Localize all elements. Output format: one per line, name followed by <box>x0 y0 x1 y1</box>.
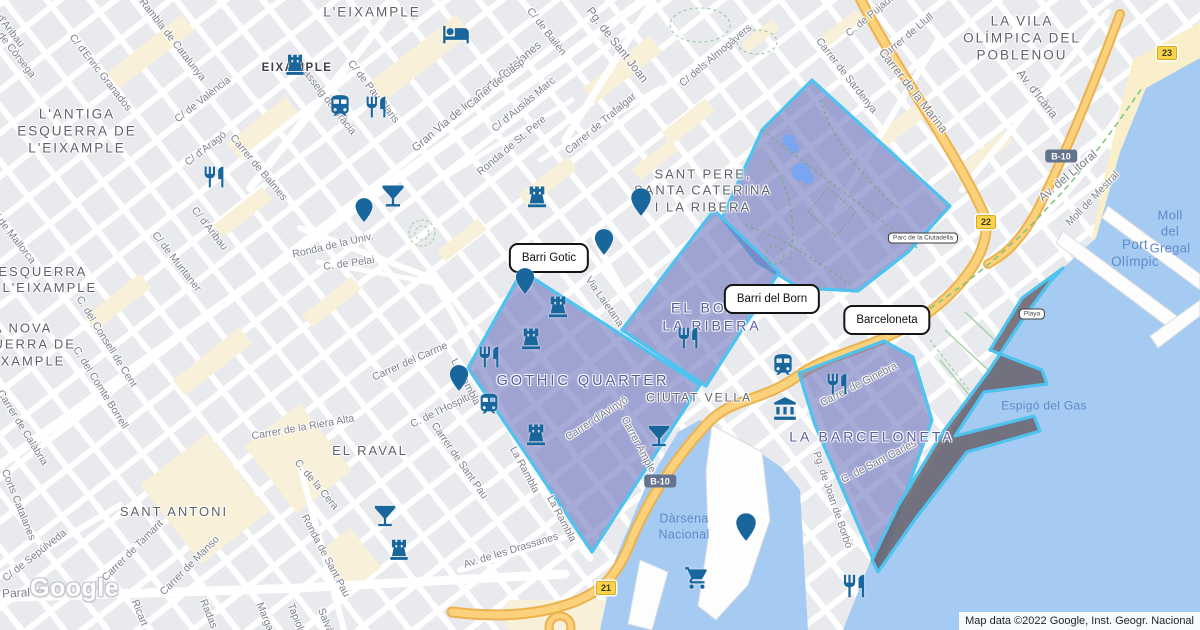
street-label: Carrer de la Marina <box>875 46 950 137</box>
district-label: GOTHIC QUARTER <box>496 372 669 390</box>
street-label: Corts Catalanes <box>0 468 38 543</box>
area-label: LA NOVA ESQUERRA DE L'EIXAMPLE <box>0 321 76 370</box>
google-logo[interactable]: Google <box>30 574 119 603</box>
area-label: L'ANTIGA ESQUERRA DE L'EIXAMPLE <box>17 107 137 158</box>
street-label: C. de la Cera <box>291 457 341 513</box>
water-label: Moll del Gregal <box>1150 208 1191 257</box>
callout-barceloneta[interactable]: Barceloneta <box>843 305 930 335</box>
map-box-label: Playa <box>1019 309 1045 320</box>
street-label: Margarit <box>253 601 280 630</box>
train-icon[interactable] <box>770 352 796 378</box>
street-label: Pg. de Sant Joan <box>583 4 652 86</box>
route-badge: B-10 <box>1045 150 1077 163</box>
castle-icon[interactable] <box>524 183 551 210</box>
pin-icon[interactable] <box>351 197 377 223</box>
street-label: Ricart <box>128 598 150 628</box>
street-label: Carrer de la Riera Alta <box>251 413 356 444</box>
cocktail-icon[interactable] <box>372 503 399 530</box>
street-label: Carrer de Balmes <box>227 132 290 203</box>
restaurant-icon[interactable] <box>364 95 389 120</box>
area-label: SANT ANTONI <box>120 504 228 520</box>
street-label: Tapioles <box>284 602 311 630</box>
pin-icon[interactable] <box>590 228 618 256</box>
street-label: C/ d'Enric Granados <box>66 32 134 114</box>
bed-icon[interactable] <box>442 20 470 48</box>
area-label: EL RAVAL <box>332 443 408 459</box>
area-label: CIUTAT VELLA <box>646 391 752 406</box>
street-label: Rambla de Catalunya <box>136 0 209 84</box>
map-canvas[interactable]: C. de CòrsegaC/ d'AribauC/ d'Enric Grana… <box>0 0 1200 630</box>
street-label: C. de Pelai <box>323 254 376 274</box>
street-label: Carrer del Carme <box>370 340 449 385</box>
castle-icon[interactable] <box>282 51 308 77</box>
route-badge: B-10 <box>644 475 676 488</box>
street-label: C/ de València <box>172 74 233 126</box>
area-label: L'ESQUERRA DE L'EIXAMPLE <box>0 264 97 297</box>
castle-icon[interactable] <box>545 293 572 320</box>
pin-icon[interactable] <box>731 512 761 542</box>
museum-icon[interactable] <box>772 396 798 422</box>
cocktail-icon[interactable] <box>646 423 673 450</box>
street-label: C/ d'Aribau <box>188 205 230 254</box>
castle-icon[interactable] <box>523 421 550 448</box>
restaurant-icon[interactable] <box>825 372 850 397</box>
train-icon[interactable] <box>327 93 353 119</box>
map-overlay: C. de CòrsegaC/ d'AribauC/ d'Enric Grana… <box>0 0 1200 630</box>
street-label: Radas <box>196 597 220 630</box>
cocktail-icon[interactable] <box>379 182 407 210</box>
train-icon[interactable] <box>477 392 502 417</box>
callout-barri-del-born[interactable]: Barri del Born <box>724 284 820 314</box>
castle-icon[interactable] <box>386 536 412 562</box>
street-label: Carrer de Sardenya <box>812 36 879 117</box>
water-label: Dàrsena Nacional <box>658 511 709 542</box>
castle-icon[interactable] <box>518 325 545 352</box>
street-label: Carrer de Trafalgar <box>563 90 639 157</box>
street-label: La Rambla <box>506 445 541 496</box>
area-label: L'EIXAMPLE <box>323 5 421 22</box>
street-label: Pg. de Joan de Borbó <box>809 450 854 550</box>
street-label: Carrer de Manso <box>158 534 223 599</box>
cart-icon[interactable] <box>684 565 710 591</box>
restaurant-icon[interactable] <box>841 573 868 600</box>
route-badge: 22 <box>976 215 996 229</box>
street-label: C. del Consell de Cent <box>73 294 140 390</box>
pin-icon[interactable] <box>445 364 473 392</box>
street-label: Via Laietana <box>582 274 626 329</box>
pin-icon[interactable] <box>626 187 656 217</box>
district-label: LA BARCELONETA <box>789 428 954 446</box>
street-label: Carrer de Sant Pau <box>428 420 491 502</box>
water-label: Espigó del Gas <box>1001 399 1087 414</box>
street-label: Carrer de Calàbria <box>0 388 50 468</box>
restaurant-icon[interactable] <box>676 326 701 351</box>
area-label: LA VILA OLÍMPICA DEL POBLENOU <box>963 14 1081 65</box>
restaurant-icon[interactable] <box>202 165 227 190</box>
street-label: Av. de les Drassanes <box>462 530 560 571</box>
street-label: Ronda de Sant Pau <box>298 512 353 599</box>
street-label: C/ d'Aragó <box>183 129 230 170</box>
street-label: C/ de Mallorca <box>0 205 38 266</box>
route-badge: 21 <box>596 581 616 595</box>
street-label: C/ dels Almogàvers <box>677 22 755 90</box>
street-label: Salvà <box>314 606 336 630</box>
street-label: C/ de Muntaner <box>149 229 204 294</box>
restaurant-icon[interactable] <box>477 345 502 370</box>
street-label: Av. d'Icària <box>1013 67 1060 122</box>
map-box-label: Parc de la Ciutadella <box>888 233 958 244</box>
route-badge: 23 <box>1157 46 1177 60</box>
map-attribution: Map data ©2022 Google, Inst. Geogr. Naci… <box>959 612 1200 630</box>
pin-icon[interactable] <box>511 267 539 295</box>
street-label: C. de Pujades <box>844 0 903 40</box>
